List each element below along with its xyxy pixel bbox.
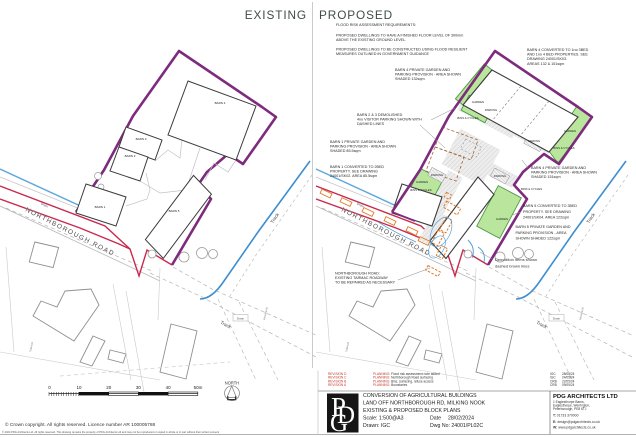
svg-text:CRB: CRB [550, 383, 557, 387]
svg-text:BINS & CYCLES: BINS & CYCLES [457, 116, 478, 120]
svg-text:PARKING: PARKING [528, 139, 540, 143]
svg-text:SHADED 132sqm: SHADED 132sqm [395, 77, 425, 81]
svg-text:Peterborough, PE8 6TJ: Peterborough, PE8 6TJ [553, 407, 587, 411]
svg-text:PROPERTY. SEE DRAWING: PROPERTY. SEE DRAWING [330, 170, 378, 174]
svg-text:GARDEN: GARDEN [472, 100, 484, 104]
svg-text:BARN 4 PRIVATE GARDEN AND: BARN 4 PRIVATE GARDEN AND [395, 68, 450, 72]
svg-text:W: www.pdgarchitects.co.uk: W: www.pdgarchitects.co.uk [553, 426, 596, 430]
svg-text:DASHED LINES: DASHED LINES [357, 122, 385, 126]
svg-text:BARN 1: BARN 1 [95, 205, 106, 209]
svg-text:NORTH: NORTH [225, 381, 240, 386]
svg-text:PARKING: PARKING [485, 108, 497, 112]
svg-text:PARKING: PARKING [431, 173, 443, 177]
svg-text:TO BE REPAIRED AS NECESSARY: TO BE REPAIRED AS NECESSARY [335, 281, 396, 285]
svg-text:Drain: Drain [553, 317, 561, 321]
svg-text:© Crown copyright. All rights: © Crown copyright. All rights reserved. … [5, 421, 156, 428]
svg-text:BINS & CYCLES: BINS & CYCLES [553, 146, 574, 150]
svg-text:dashed brown lines: dashed brown lines [495, 263, 529, 268]
svg-text:40: 40 [166, 385, 172, 390]
svg-text:PROPOSED DWELLINGS TO BE CONST: PROPOSED DWELLINGS TO BE CONSTRUCTED USI… [336, 48, 468, 52]
svg-text:BINS & CYCLES: BINS & CYCLES [521, 187, 542, 191]
svg-text:PARKING PROVISION - AREA: PARKING PROVISION - AREA [516, 231, 567, 235]
svg-text:T: 01733 370000: T: 01733 370000 [553, 414, 579, 418]
svg-text:ABOVE THE EXISTING GROUND LEVE: ABOVE THE EXISTING GROUND LEVEL. [336, 38, 406, 42]
svg-text:PARKING PROVISION - AREA SHOWN: PARKING PROVISION - AREA SHOWN [531, 171, 597, 175]
svg-text:Drawn: IGC: Drawn: IGC [363, 423, 390, 429]
svg-text:10: 10 [76, 385, 82, 390]
svg-text:SHADED 85.5sqm: SHADED 85.5sqm [330, 149, 361, 153]
svg-text:PARKING PROVISION - AREA SHOWN: PARKING PROVISION - AREA SHOWN [330, 145, 396, 149]
svg-text:REVISION A: REVISION A [328, 383, 347, 387]
svg-text:BINS & CYCLES: BINS & CYCLES [410, 188, 431, 192]
svg-text:BARN 5 PRIVATE GARDEN AND: BARN 5 PRIVATE GARDEN AND [516, 225, 571, 229]
svg-text:EXISTING & PROPOSED BLOCK PLAN: EXISTING & PROPOSED BLOCK PLANS [363, 408, 461, 414]
svg-text:PROPOSED DWELLINGS TO HAVE A F: PROPOSED DWELLINGS TO HAVE A FINISHED FL… [336, 34, 463, 38]
svg-text:AND 1no 4 BED PROPERTIES. SEE: AND 1no 4 BED PROPERTIES. SEE [527, 53, 588, 57]
svg-text:30: 30 [136, 385, 142, 390]
svg-text:BARN 2 & 3 DEMOLISHED: BARN 2 & 3 DEMOLISHED [357, 113, 403, 117]
svg-text:© 2024 PDG Architects Ltd. All: © 2024 PDG Architects Ltd. All rights re… [2, 430, 219, 434]
svg-text:28/02/2024: 28/02/2024 [448, 416, 474, 422]
svg-text:BARN 4 CONVERTED TO 1no 3BED: BARN 4 CONVERTED TO 1no 3BED [527, 48, 589, 52]
svg-text:20: 20 [106, 385, 112, 390]
svg-text:E: design@pdgarchitects.co.uk: E: design@pdgarchitects.co.uk [553, 420, 600, 424]
svg-text:Drain: Drain [237, 317, 245, 321]
svg-text:AREAS 132 & 151sqm: AREAS 132 & 151sqm [527, 62, 564, 66]
svg-text:EXISTING: EXISTING [245, 8, 307, 22]
svg-text:Demolition items shown: Demolition items shown [495, 257, 537, 262]
svg-text:G: G [330, 410, 348, 437]
svg-text:BARN 1 CONVERTED TO 2BED: BARN 1 CONVERTED TO 2BED [330, 165, 384, 169]
svg-text:24001/SK04. AREA 122sqm: 24001/SK04. AREA 122sqm [523, 216, 569, 220]
svg-text:BARN 5 CONVERTED TO 3BED: BARN 5 CONVERTED TO 3BED [523, 204, 577, 208]
svg-text:BARN 4 PRIVATE GARDEN AND: BARN 4 PRIVATE GARDEN AND [531, 166, 586, 170]
svg-text:SHOWN SHADED 122sqm: SHOWN SHADED 122sqm [516, 237, 561, 241]
svg-text:50m: 50m [194, 385, 203, 390]
svg-text:GARDEN: GARDEN [496, 217, 508, 221]
svg-text:GARDEN: GARDEN [416, 180, 428, 184]
svg-text:Date: Date [430, 416, 441, 422]
svg-text:FLOOD RISK ASSESSMENT REQUIREM: FLOOD RISK ASSESSMENT REQUIREMENTS: [336, 23, 416, 27]
svg-text:GARDEN: GARDEN [564, 129, 576, 133]
svg-text:DRAWING 24001/SK03.: DRAWING 24001/SK03. [527, 57, 567, 61]
svg-text:LAND OFF NORTHBOROUGH RD, MILK: LAND OFF NORTHBOROUGH RD, MILKING NOOK [363, 401, 486, 407]
svg-text:NORTHBOROUGH ROAD:: NORTHBOROUGH ROAD: [335, 272, 380, 276]
svg-text:09/05/24: 09/05/24 [562, 383, 575, 387]
svg-text:PLANNING: Boundaries: PLANNING: Boundaries [373, 383, 408, 387]
svg-text:PARKING: PARKING [494, 174, 506, 178]
svg-text:SHADED 151sqm: SHADED 151sqm [531, 175, 561, 179]
svg-text:Dwg No: 24001/PL02C: Dwg No: 24001/PL02C [430, 423, 483, 429]
svg-text:PROPOSED: PROPOSED [319, 8, 393, 22]
svg-text:BARN 2: BARN 2 [125, 154, 136, 158]
svg-text:CONVERSION OF AGRICULTURAL BUI: CONVERSION OF AGRICULTURAL BUILDINGS [363, 393, 477, 399]
svg-text:PARKING PROVISION - AREA SHOWN: PARKING PROVISION - AREA SHOWN [395, 73, 461, 77]
svg-text:BARN 3: BARN 3 [136, 137, 147, 141]
svg-text:BARN 5: BARN 5 [169, 209, 180, 213]
svg-text:PROPERTY. SEE DRAWING: PROPERTY. SEE DRAWING [523, 210, 571, 214]
svg-text:4no VISITOR PARKING SHOWN WITH: 4no VISITOR PARKING SHOWN WITH [357, 118, 422, 122]
svg-text:24001/SK02. AREA 85.5sqm: 24001/SK02. AREA 85.5sqm [330, 174, 377, 178]
svg-text:EXISTING TARMAC ROADWAY: EXISTING TARMAC ROADWAY [335, 276, 389, 280]
svg-text:Scale: 1:500@A3: Scale: 1:500@A3 [363, 416, 404, 422]
svg-text:MEASURES OUTLINED IN GOVERNMEN: MEASURES OUTLINED IN GOVERNMENT GUIDANCE [336, 52, 429, 56]
svg-text:BARN 1 PRIVATE GARDEN AND: BARN 1 PRIVATE GARDEN AND [330, 140, 385, 144]
svg-text:BARN 4: BARN 4 [215, 101, 226, 105]
